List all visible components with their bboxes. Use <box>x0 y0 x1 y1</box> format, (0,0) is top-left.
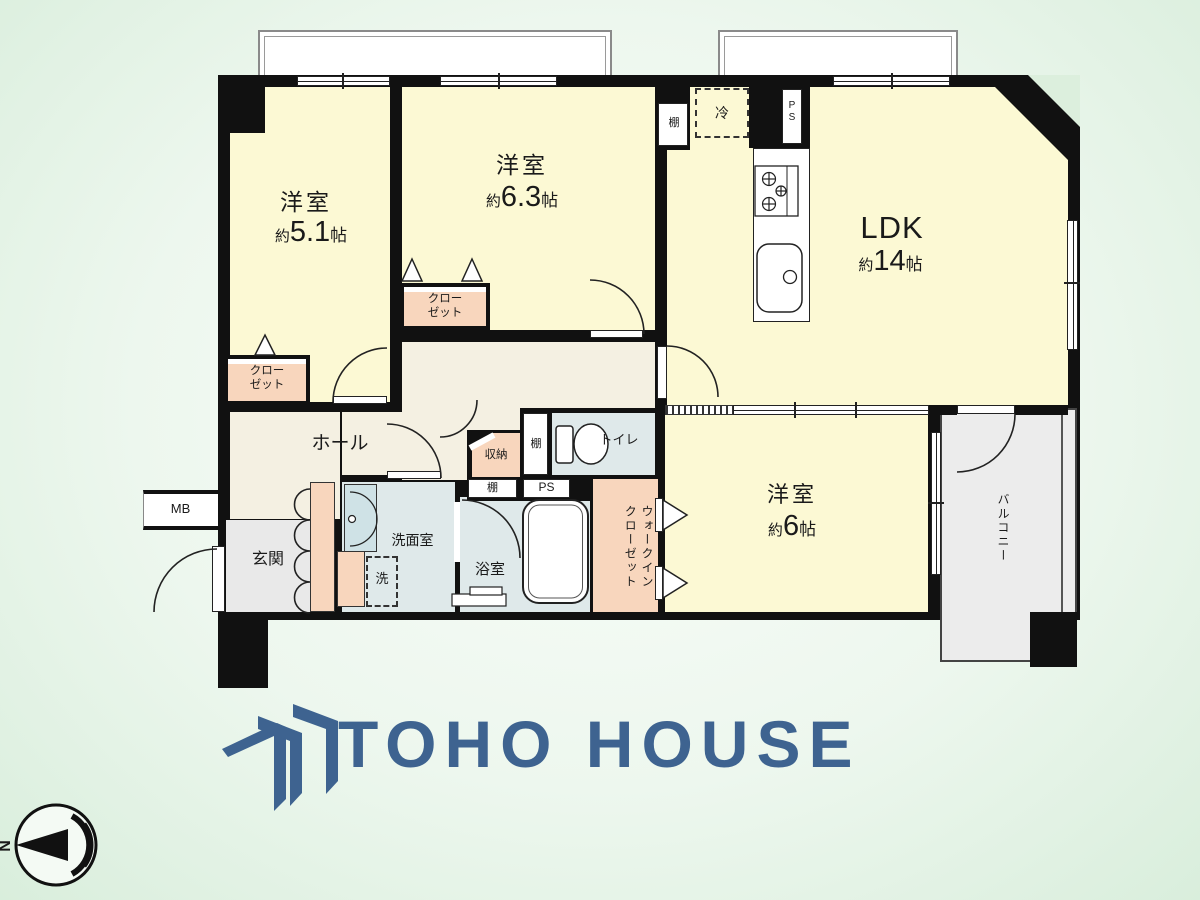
label-storage: 収納 <box>473 449 519 462</box>
label-closet1: クロー ゼット <box>226 364 308 393</box>
compass-north-label: N <box>0 840 15 852</box>
window-tick-6 <box>928 502 944 504</box>
bedroom3-approx: 約 <box>768 522 783 539</box>
bedroom3-unit: 帖 <box>799 520 816 539</box>
ldk-approx: 約 <box>858 257 873 274</box>
label-balcony: バルコニー <box>991 478 1009 578</box>
label-closet2: クロー ゼット <box>402 292 488 321</box>
wic-door-strip-1 <box>655 498 663 532</box>
label-bedroom3-size: 約6帖 <box>722 510 862 543</box>
logo-chevron-left <box>222 723 286 811</box>
balcony-wall-top-2 <box>1015 405 1068 415</box>
window-ldk-right <box>1067 220 1078 350</box>
partition-hatch-ldk-bedroom3 <box>665 405 733 415</box>
bedroom1-unit: 帖 <box>330 226 347 245</box>
label-bedroom3-name: 洋室 <box>742 482 842 507</box>
door-leaf-ldk <box>657 346 667 399</box>
compass-band-2 <box>84 824 91 866</box>
label-shelf-tall: 棚 <box>524 438 548 451</box>
wall-block-balcony-corner <box>1030 612 1077 667</box>
label-bedroom1-size: 約5.1帖 <box>216 216 406 249</box>
label-meter-box: MB <box>143 502 218 517</box>
compass-needle <box>16 829 68 861</box>
floorplan-page: { "plan": { "bedroom1": {"name": "洋室", "… <box>0 0 1200 900</box>
window-tick-1 <box>342 73 344 89</box>
logo-chevron-right <box>293 704 338 794</box>
balcony-wall-top-1 <box>940 405 957 415</box>
compass-band-1 <box>72 816 89 874</box>
shoe-cabinet <box>310 482 335 612</box>
door-arc-entrance <box>154 549 217 612</box>
room-bath <box>460 497 590 612</box>
label-shelf-kitchen: 棚 <box>660 117 688 130</box>
bedroom2-approx: 約 <box>486 193 501 210</box>
wic-door-strip-2 <box>655 566 663 600</box>
toho-house-logo-icon <box>222 704 338 811</box>
washer-side-cabinet <box>337 551 365 607</box>
wall-block-bottom-left <box>218 612 268 688</box>
kitchen-counter <box>753 148 810 322</box>
label-hall: ホール <box>290 433 390 455</box>
ldk-unit: 帖 <box>906 255 923 274</box>
window-tick-5 <box>855 402 857 418</box>
label-bedroom2-size: 約6.3帖 <box>432 181 612 214</box>
window-bedroom3-top <box>733 405 929 415</box>
compass-icon <box>16 805 96 885</box>
door-sill-washroom <box>387 471 441 479</box>
label-ps-wall: PS <box>523 481 570 495</box>
bedroom2-num: 6.3 <box>501 181 541 213</box>
window-tick-3 <box>891 73 893 89</box>
door-leaf-entrance <box>212 546 225 612</box>
label-washer: 洗 <box>368 572 396 587</box>
compass-circle <box>16 805 96 885</box>
label-ldk-name: LDK <box>832 210 952 246</box>
bedroom3-num: 6 <box>783 510 799 542</box>
bedroom2-unit: 帖 <box>541 191 558 210</box>
label-shelf-wall: 棚 <box>468 482 517 495</box>
label-ps-kitchen: P S <box>783 100 801 123</box>
label-refrigerator: 冷 <box>706 105 738 121</box>
ldk-num: 14 <box>873 245 905 277</box>
label-toilet: トイレ <box>584 433 654 448</box>
window-tick-4 <box>794 402 796 418</box>
bedroom1-num: 5.1 <box>290 216 330 248</box>
window-tick-2 <box>498 73 500 89</box>
door-leaf-balcony <box>957 405 1015 414</box>
window-tick-7 <box>1064 282 1080 284</box>
toho-house-logo-text: TOHO HOUSE <box>338 706 861 782</box>
door-sill-bedroom1 <box>333 396 387 404</box>
bedroom1-approx: 約 <box>275 228 290 245</box>
label-entrance: 玄関 <box>228 551 308 569</box>
label-bedroom1-name: 洋室 <box>246 189 366 215</box>
door-sill-bedroom2 <box>590 330 643 338</box>
label-bath: 浴室 <box>460 561 520 578</box>
label-washroom: 洗面室 <box>370 532 455 548</box>
label-bedroom2-name: 洋室 <box>462 152 582 178</box>
label-ldk-size: 約14帖 <box>818 245 963 278</box>
label-walk-in-closet: ウォークイン クローゼット <box>597 487 655 607</box>
logo-chevron-mid <box>258 716 302 806</box>
